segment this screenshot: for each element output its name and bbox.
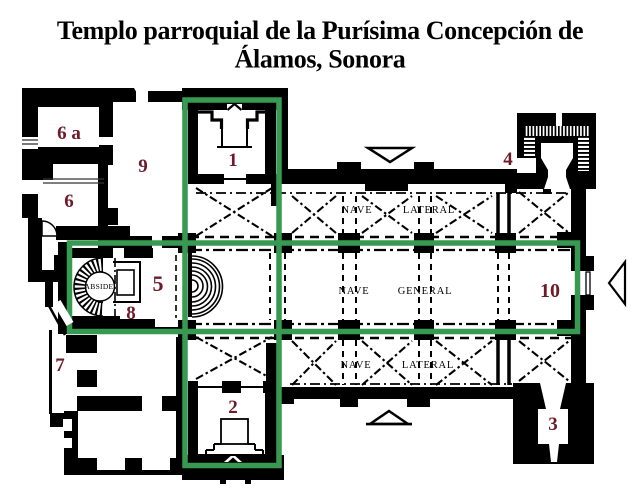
svg-text:NAVE: NAVE [338, 286, 369, 297]
svg-text:5: 5 [153, 271, 164, 296]
svg-text:3: 3 [548, 414, 558, 435]
svg-text:6 a: 6 a [57, 123, 81, 144]
svg-text:4: 4 [503, 149, 513, 170]
svg-text:8: 8 [126, 303, 136, 324]
svg-text:Templo parroquial de la Purísi: Templo parroquial de la Purísima Concepc… [57, 16, 583, 45]
svg-text:NAVE: NAVE [340, 360, 371, 371]
svg-text:LATERAL: LATERAL [402, 360, 454, 371]
svg-text:7: 7 [55, 355, 65, 376]
svg-text:9: 9 [138, 156, 148, 177]
svg-text:10: 10 [540, 280, 560, 302]
svg-text:LATERAL: LATERAL [403, 205, 455, 216]
svg-text:2: 2 [228, 397, 238, 418]
svg-text:ABSIDE: ABSIDE [85, 282, 114, 291]
svg-text:1: 1 [228, 150, 238, 171]
svg-text:GENERAL: GENERAL [398, 286, 453, 297]
svg-text:6: 6 [64, 191, 74, 212]
svg-text:NAVE: NAVE [341, 205, 372, 216]
svg-text:Álamos, Sonora: Álamos, Sonora [235, 45, 406, 74]
